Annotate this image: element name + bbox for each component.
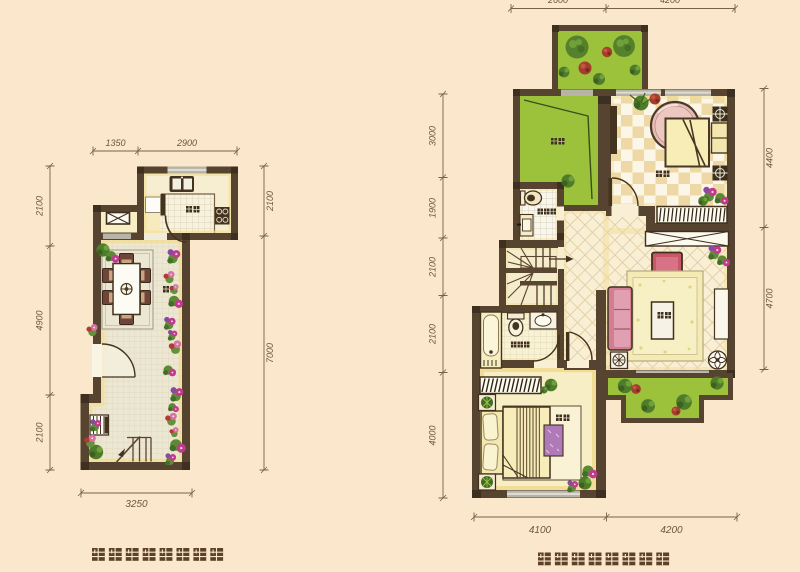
svg-text:4400: 4400 (765, 148, 775, 168)
svg-text:4200: 4200 (660, 525, 683, 536)
svg-text:2100: 2100 (428, 324, 438, 345)
svg-text:4000: 4000 (428, 425, 438, 445)
svg-text:2100: 2100 (265, 191, 275, 212)
svg-text:2600: 2600 (547, 0, 568, 5)
svg-text:1900: 1900 (428, 198, 438, 218)
svg-text:3000: 3000 (428, 126, 438, 146)
svg-text:2900: 2900 (176, 138, 197, 148)
svg-text:2100: 2100 (35, 196, 45, 217)
svg-text:4200: 4200 (660, 0, 680, 5)
svg-text:7000: 7000 (265, 343, 275, 363)
svg-text:4700: 4700 (765, 288, 775, 308)
svg-text:4900: 4900 (35, 310, 45, 330)
svg-text:2100: 2100 (35, 422, 45, 443)
svg-text:4100: 4100 (529, 525, 552, 536)
svg-text:2100: 2100 (428, 257, 438, 278)
svg-text:3250: 3250 (125, 499, 148, 510)
svg-text:1350: 1350 (105, 138, 125, 148)
